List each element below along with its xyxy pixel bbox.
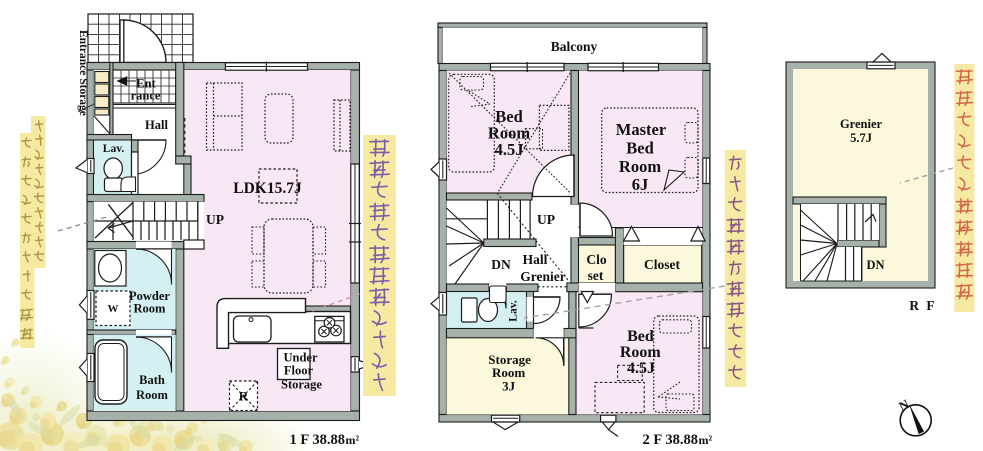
svg-text:DN: DN (491, 257, 511, 272)
svg-text:Hall: Hall (523, 252, 548, 267)
svg-text:Storage: Storage (281, 378, 322, 392)
svg-text:N: N (896, 396, 912, 414)
svg-text:Room: Room (134, 302, 167, 316)
svg-text:UP: UP (206, 212, 224, 227)
svg-text:Clo: Clo (586, 252, 607, 267)
svg-text:Under: Under (283, 351, 317, 365)
svg-text:R: R (239, 389, 249, 404)
svg-text:Bed: Bed (626, 139, 654, 158)
svg-text:3J: 3J (502, 379, 516, 394)
svg-text:Room: Room (136, 388, 169, 402)
svg-text:6J: 6J (632, 175, 649, 194)
svg-text:4.5J: 4.5J (495, 140, 524, 159)
svg-text:Lav.: Lav. (508, 300, 520, 322)
svg-text:Bed: Bed (627, 328, 654, 345)
svg-text:Room: Room (620, 344, 662, 361)
svg-text:W: W (108, 303, 119, 315)
svg-text:Floor: Floor (284, 364, 314, 378)
svg-text:5.7J: 5.7J (850, 131, 872, 145)
svg-text:set: set (588, 268, 604, 283)
svg-text:4.5J: 4.5J (627, 360, 655, 377)
svg-text:R F: R F (909, 298, 936, 313)
svg-text:m²: m² (699, 433, 713, 447)
svg-text:LDK15.7J: LDK15.7J (233, 180, 302, 197)
svg-text:UP: UP (537, 212, 555, 227)
svg-text:Master: Master (616, 120, 666, 139)
svg-text:1 F 38.88: 1 F 38.88 (290, 432, 345, 448)
svg-text:Hall: Hall (145, 118, 168, 132)
svg-text:Balcony: Balcony (551, 39, 598, 54)
svg-text:Grenier: Grenier (840, 117, 883, 131)
svg-text:2 F 38.88: 2 F 38.88 (643, 432, 698, 448)
svg-text:m²: m² (346, 433, 360, 447)
svg-text:DN: DN (866, 258, 884, 272)
svg-text:Bath: Bath (139, 373, 165, 387)
svg-text:Lav.: Lav. (103, 143, 125, 155)
svg-text:Entrance Storage: Entrance Storage (77, 30, 89, 116)
svg-text:Room: Room (619, 157, 661, 176)
svg-text:Grenier: Grenier (520, 269, 565, 284)
svg-text:Closet: Closet (644, 257, 680, 272)
svg-text:rance: rance (131, 89, 161, 103)
